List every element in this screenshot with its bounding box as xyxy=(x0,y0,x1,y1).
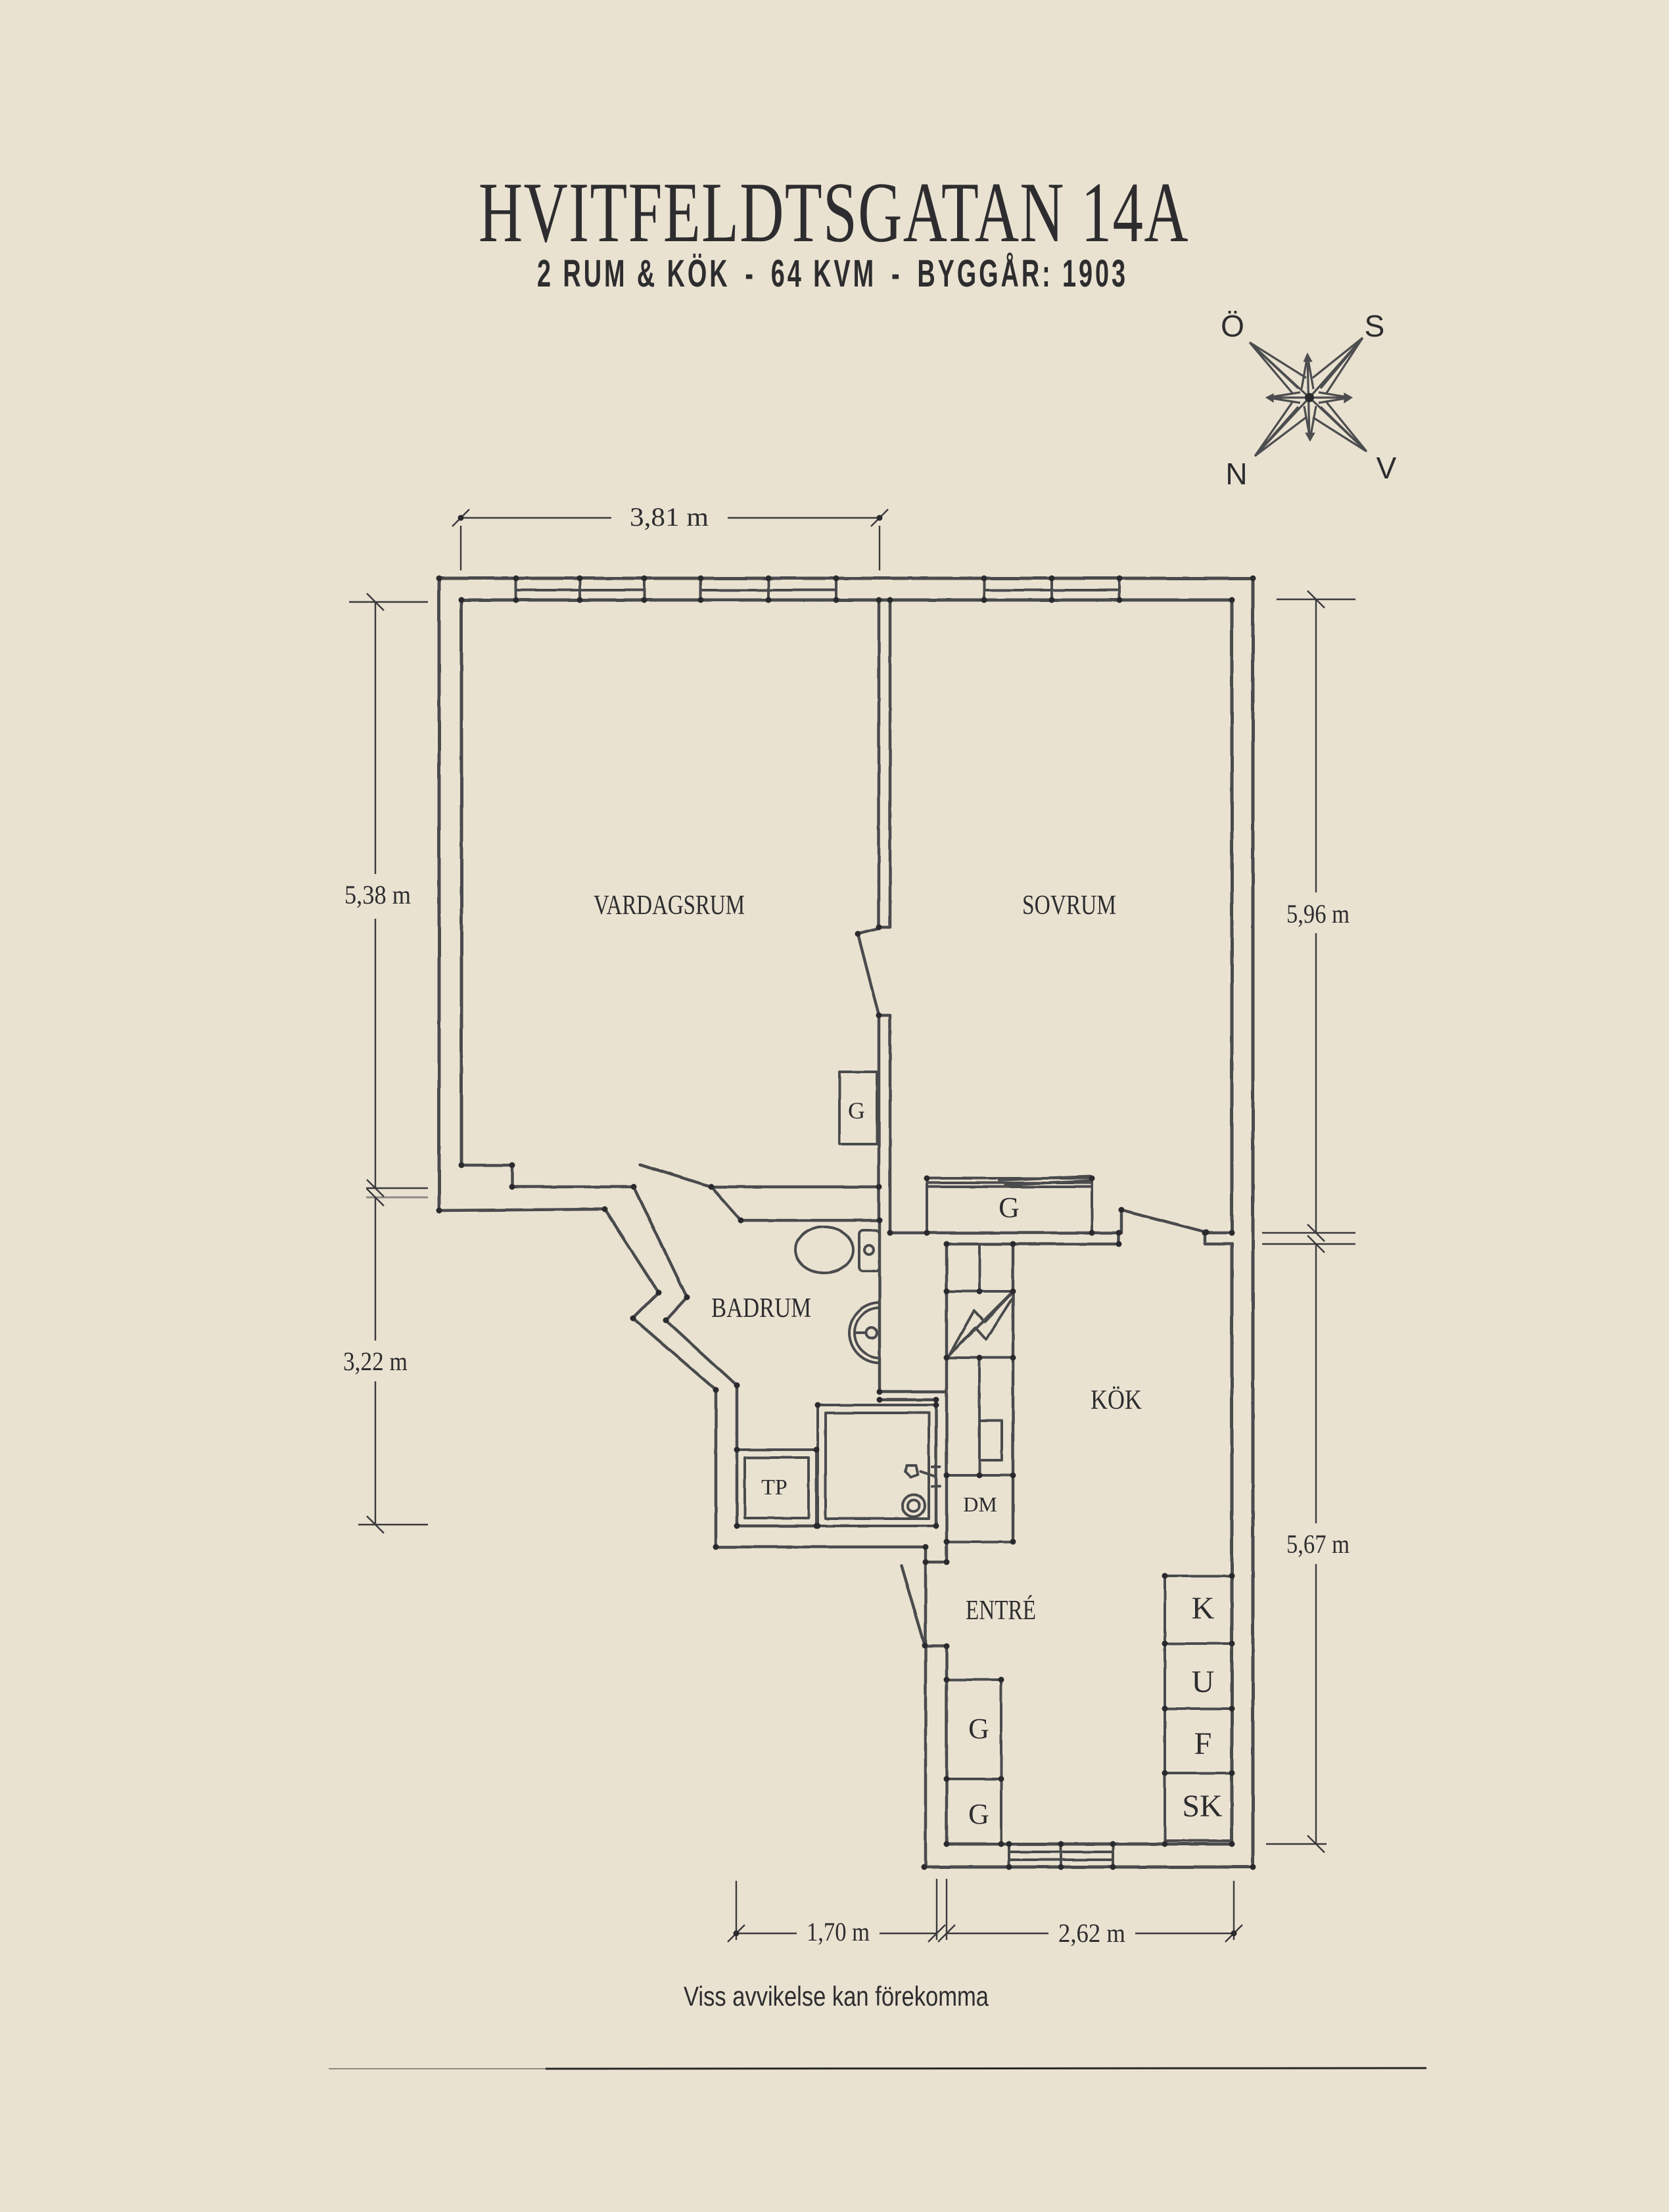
svg-text:TP: TP xyxy=(761,1475,787,1500)
svg-text:HVITFELDTSGATAN 14A: HVITFELDTSGATAN 14A xyxy=(479,165,1189,260)
svg-text:VARDAGSRUM: VARDAGSRUM xyxy=(594,890,745,921)
svg-text:U: U xyxy=(1192,1665,1215,1699)
svg-text:SOVRUM: SOVRUM xyxy=(1022,890,1116,921)
svg-text:V: V xyxy=(1376,451,1397,485)
svg-text:K: K xyxy=(1192,1591,1215,1626)
svg-text:DM: DM xyxy=(963,1492,997,1516)
svg-text:2,62 m: 2,62 m xyxy=(1058,1918,1125,1948)
svg-text:G: G xyxy=(968,1713,989,1745)
svg-text:3,22 m: 3,22 m xyxy=(343,1347,408,1376)
svg-text:3,81 m: 3,81 m xyxy=(630,502,709,532)
svg-text:5,67 m: 5,67 m xyxy=(1286,1529,1350,1559)
svg-text:F: F xyxy=(1194,1726,1212,1761)
svg-text:5,38 m: 5,38 m xyxy=(344,880,411,910)
svg-text:BADRUM: BADRUM xyxy=(711,1293,811,1324)
svg-text:1,70 m: 1,70 m xyxy=(807,1917,870,1947)
svg-text:G: G xyxy=(999,1191,1020,1224)
svg-text:2 RUM & KÖK - 64 KVM - BYGGÅR:: 2 RUM & KÖK - 64 KVM - BYGGÅR: 1903 xyxy=(537,252,1128,295)
svg-text:Viss avvikelse kan förekomma: Viss avvikelse kan förekomma xyxy=(684,1981,989,2012)
svg-text:SK: SK xyxy=(1182,1789,1223,1824)
svg-text:G: G xyxy=(848,1097,865,1124)
svg-text:Ö: Ö xyxy=(1221,309,1244,343)
svg-text:5,96 m: 5,96 m xyxy=(1286,899,1350,929)
svg-text:G: G xyxy=(968,1798,989,1830)
svg-text:N: N xyxy=(1225,457,1247,491)
svg-text:KÖK: KÖK xyxy=(1091,1385,1142,1416)
svg-text:S: S xyxy=(1365,309,1385,343)
svg-text:ENTRÉ: ENTRÉ xyxy=(966,1595,1036,1626)
